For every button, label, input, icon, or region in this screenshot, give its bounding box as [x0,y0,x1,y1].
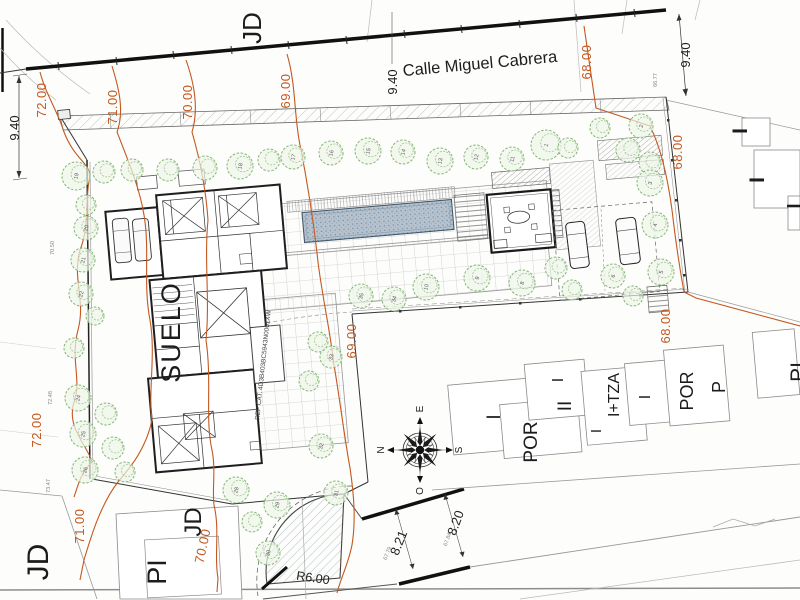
tree [95,403,117,425]
dim-street-width-mid: 9.40 [385,69,400,94]
dim-street-width-east: 9.40 [678,42,693,67]
tree: 10 [413,274,439,300]
spot-elevation: 72.48 [48,391,54,405]
contour-label-68-south: 68.00 [658,308,673,343]
tree [121,159,143,181]
tree [545,257,567,279]
neighbor-label-i: I [729,128,752,134]
compass-n: N [376,446,387,453]
street-edge [0,9,666,73]
tree: 14 [391,140,415,164]
tree [242,512,262,532]
contour-label-68-top: 68.00 [579,44,594,79]
contour-label-69-top: 69.00 [278,73,293,108]
neighbor-label-i-tza: I+TZA [606,373,623,417]
neighbor-label-por: POR [677,371,697,410]
zone-label-jd-left: JD [22,544,55,581]
tree: 17 [281,145,305,169]
tree: 24 [65,385,91,411]
tree: 25 [70,421,96,447]
tree [193,156,217,180]
tree [590,118,610,138]
tree: 26 [72,457,98,483]
contour-label-71-bottom: 71.00 [72,508,87,543]
tree: 35 [349,284,373,308]
neighbor-label-i: I [637,395,654,399]
tree: 22 [69,282,93,306]
tree: 8 [509,270,535,296]
neighbor-label-i: I [484,414,505,419]
tree [562,280,582,300]
tree [102,437,124,459]
tree: 16 [319,141,343,165]
neighbor-label-i: I [784,203,800,208]
compass-e: E [415,405,426,412]
spot-elevation: 73.47 [46,479,52,493]
tree [258,149,280,171]
compass-o: O [415,487,426,495]
tree [308,332,328,352]
compass-s: S [454,446,465,453]
tree: 1 [531,130,561,160]
tree: 21 [71,248,95,272]
contour-label-69-mid: 69.00 [344,323,359,358]
tree: 13 [427,148,453,174]
tree: 34 [382,287,406,311]
zone-label-jd-top: JD [237,12,267,44]
tree [616,138,640,162]
tree: 29 [264,492,290,518]
tree: 11 [500,147,524,171]
tree: 15 [355,138,381,164]
tree [93,161,115,183]
dim-road-b: 8.20 [444,508,467,537]
neighbor-label-i: I [588,429,605,433]
tree: 6 [601,264,625,288]
zone-label-pi-right: PI [787,362,800,382]
street-name: Calle Miguel Cabrera [402,48,559,80]
tree [64,338,84,358]
neighbor-label-por: POR [521,421,542,462]
tree [86,307,104,325]
tree: 20 [74,216,98,240]
contour-label-72-top: 72.00 [34,82,49,117]
tree [157,159,179,181]
tree: 2 [629,114,653,138]
site-plan-drawing: 1918171615141312111234563534109820212224… [0,0,800,600]
contour-label-72-bottom: 72.00 [29,412,44,447]
neighbor-label-i: I [746,177,769,183]
tree [558,138,578,158]
tree: 28 [223,477,249,503]
dim-street-width-west: 9.40 [7,115,22,140]
car [615,217,640,265]
site-plan-sheet: 1918171615141312111234563534109820212224… [0,0,800,600]
tree: 12 [464,145,488,169]
tree: 19 [62,162,90,190]
tree [76,195,96,215]
spot-elevation: 70.50 [50,241,56,255]
contour-label-68-east: 68.00 [670,134,685,169]
contour-label-71-top: 71.00 [105,89,120,124]
tree: 32 [309,434,333,458]
neighbor-label-i: I [550,378,567,382]
sidewalk [60,97,669,130]
tree: 30 [256,541,280,565]
suelo-label: SUELO [156,281,186,383]
neighbor-label-ii: II [555,401,576,412]
tree: 9 [464,265,490,291]
tree: 3 [637,170,663,196]
dim-road-a: 8.21 [387,528,410,557]
zone-label-pi-left: PI [142,559,172,585]
tree: 18 [227,153,253,179]
neighbor-label-p: P [709,381,729,393]
tree: 4 [642,212,668,238]
tree: 5 [648,259,674,285]
spot-elevation: 66.77 [653,73,659,87]
contour-label-70-top: 70.00 [180,84,195,119]
tree [299,371,319,391]
pavilion-steps-west [454,193,488,241]
tree [623,286,643,306]
tree [115,462,135,482]
tree: 31 [324,481,348,505]
